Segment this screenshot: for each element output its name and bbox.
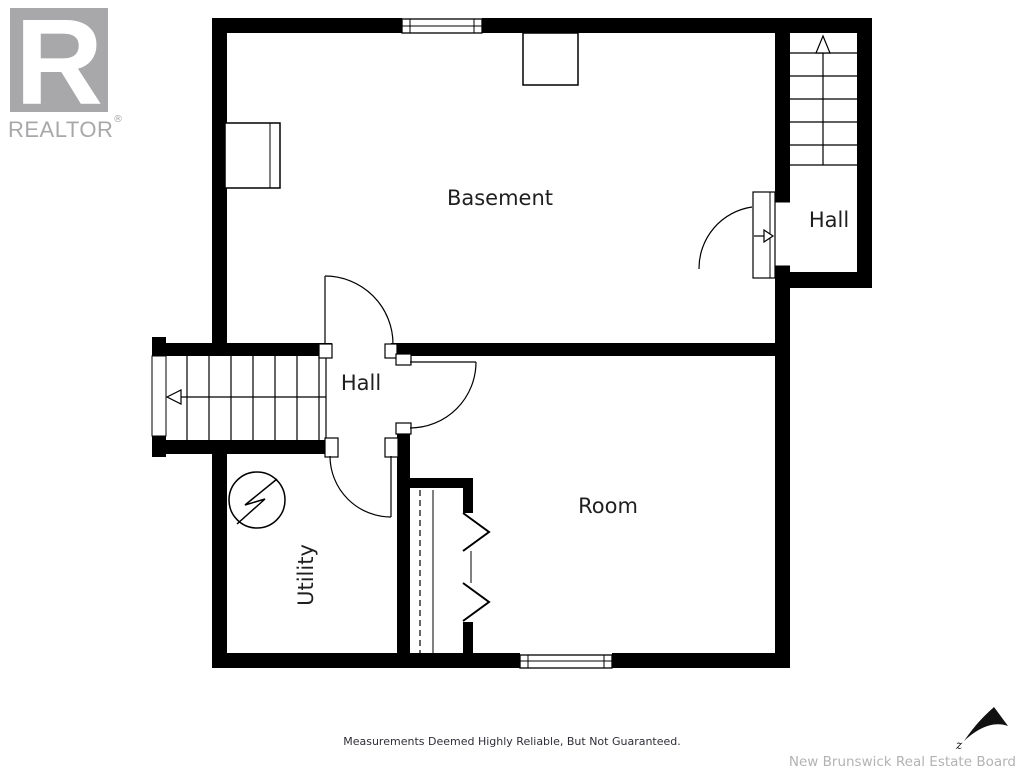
wall-segment: [152, 435, 166, 457]
window-bottom: [520, 655, 612, 668]
wall-segment: [775, 33, 790, 202]
floor-plan-page: R REALTOR ®: [0, 0, 1024, 768]
north-dart: [964, 707, 1008, 741]
door-swing-arc: [330, 456, 391, 517]
door-frame: [396, 354, 411, 365]
wall-segment: [463, 488, 473, 513]
door-swing-arc: [699, 207, 752, 269]
wall-segment: [212, 18, 402, 33]
wall-segment: [407, 478, 473, 488]
room-label-utility: Utility: [294, 544, 318, 606]
realtor-logo: R REALTOR ®: [8, 0, 123, 142]
wall-segment: [152, 337, 166, 356]
wall-segment: [153, 440, 332, 454]
panel-circle: [229, 472, 285, 528]
wall-segment: [612, 653, 790, 668]
registered-mark-icon: ®: [113, 114, 123, 125]
north-arrow-icon: z: [955, 707, 1008, 752]
logo-wordmark: REALTOR: [8, 117, 113, 142]
chimney-fixture: [523, 33, 578, 85]
door-frame: [325, 438, 338, 457]
room-label-lower-hall: Hall: [341, 371, 381, 395]
door-basement-hall: [319, 276, 397, 358]
door-swing-arc: [410, 362, 476, 428]
door-swing-arc: [325, 276, 393, 344]
walls: [152, 18, 872, 668]
door-frame: [319, 344, 332, 358]
door-frame: [385, 438, 398, 457]
room-label-room: Room: [578, 494, 638, 518]
wall-segment: [153, 343, 332, 356]
door-basement-upper-hall: [699, 192, 790, 278]
wall-segment: [391, 343, 775, 356]
bifold-door-icon: [463, 513, 489, 551]
floor-plan-canvas: R REALTOR ®: [0, 0, 1024, 768]
fixture-outline: [225, 123, 280, 188]
wall-segment: [775, 266, 790, 668]
compass-letter: z: [955, 738, 963, 752]
wall-segment: [212, 440, 227, 668]
electrical-panel-icon: [229, 472, 285, 528]
attribution-text: New Brunswick Real Estate Board: [789, 754, 1016, 768]
wall-segment: [463, 622, 473, 653]
door-frame: [385, 344, 397, 358]
window-top: [402, 19, 482, 33]
closet: [420, 490, 489, 655]
door-hall-utility: [325, 438, 398, 517]
wall-segment: [212, 653, 520, 668]
left-arrow-icon: [167, 390, 181, 404]
wall-fixture: [225, 123, 280, 188]
door-hall-room: [396, 354, 476, 434]
door-frame: [396, 423, 411, 434]
disclaimer-text: Measurements Deemed Highly Reliable, But…: [343, 735, 681, 748]
wall-segment: [857, 18, 872, 288]
staircase-left: [152, 356, 326, 440]
room-label-upper-hall: Hall: [809, 208, 849, 232]
room-label-basement: Basement: [447, 186, 553, 210]
stair-open-end: [152, 356, 166, 436]
bifold-door-icon: [463, 583, 489, 621]
wall-segment: [482, 18, 872, 33]
wall-segment: [397, 423, 410, 653]
up-arrow-icon: [816, 36, 830, 53]
logo-letter: R: [15, 0, 103, 130]
staircase-upper: [790, 36, 857, 165]
